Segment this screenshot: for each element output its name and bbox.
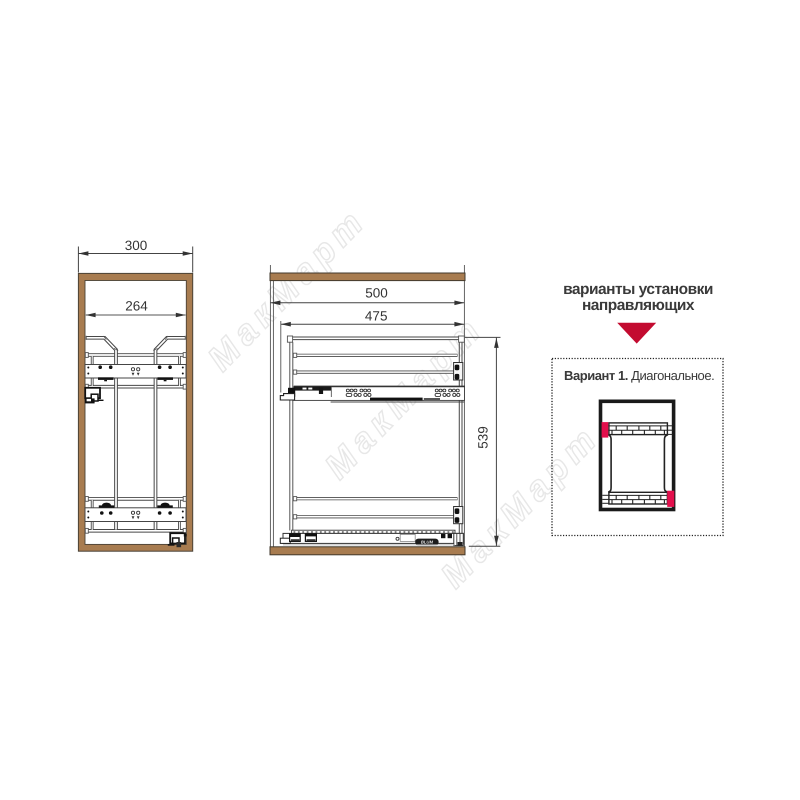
svg-text:варианты установки: варианты установки: [563, 281, 713, 298]
svg-text:направляющих: направляющих: [582, 297, 695, 314]
svg-text:300: 300: [125, 238, 148, 253]
svg-text:500: 500: [365, 285, 388, 300]
svg-text:539: 539: [476, 426, 491, 449]
svg-text:BLUM: BLUM: [421, 539, 434, 544]
svg-text:475: 475: [365, 308, 388, 323]
svg-text:264: 264: [125, 298, 148, 313]
svg-text:Вариант 1. Диагональное.: Вариант 1. Диагональное.: [564, 368, 714, 383]
